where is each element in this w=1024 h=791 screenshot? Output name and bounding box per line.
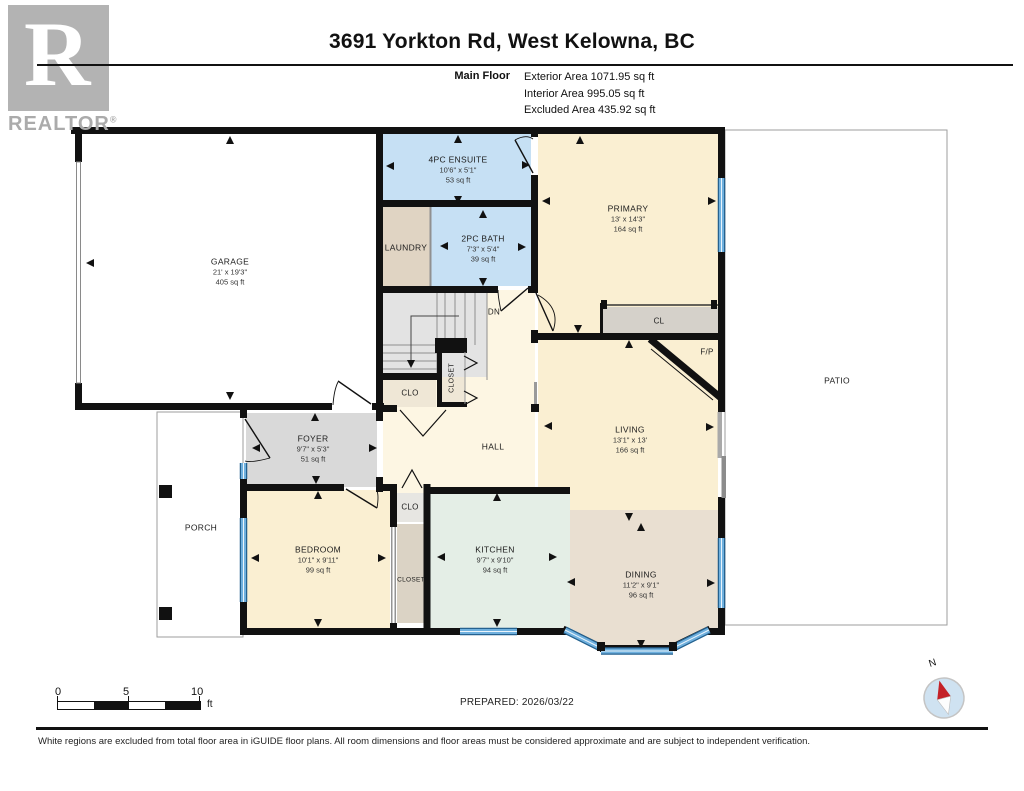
registered-mark: ® bbox=[110, 114, 118, 124]
room-name: FOYER bbox=[297, 434, 330, 445]
compass-icon bbox=[920, 674, 969, 723]
excluded-area: Excluded Area 435.92 sq ft bbox=[524, 103, 655, 120]
room-area: 166 sq ft bbox=[613, 446, 647, 456]
hall-closet-label: CLOSET bbox=[449, 363, 456, 393]
room-dims: 9'7" x 9'10" bbox=[475, 556, 514, 566]
room-area: 405 sq ft bbox=[211, 278, 249, 288]
room-dims: 21' x 19'3" bbox=[211, 268, 249, 278]
room-area: 164 sq ft bbox=[608, 225, 649, 235]
room-area: 51 sq ft bbox=[297, 455, 330, 465]
closet-label-cl: CL bbox=[654, 317, 665, 326]
room-area: 99 sq ft bbox=[295, 566, 341, 576]
realtor-logo-mark: R bbox=[8, 5, 109, 111]
page-title: 3691 Yorkton Rd, West Kelowna, BC bbox=[0, 30, 1024, 54]
scale-bar: 0 5 10 ft bbox=[55, 686, 275, 716]
room-name: PRIMARY bbox=[608, 204, 649, 215]
title-divider bbox=[37, 64, 1013, 66]
bedroom-closet-label: CLOSET bbox=[397, 577, 425, 584]
footer-divider bbox=[36, 727, 988, 730]
disclaimer-text: White regions are excluded from total fl… bbox=[38, 736, 1004, 747]
scale-unit: ft bbox=[207, 699, 213, 710]
room-label-ensuite: 4PC ENSUITE 10'6" x 5'1" 53 sq ft bbox=[428, 155, 487, 186]
room-label-primary: PRIMARY 13' x 14'3" 164 sq ft bbox=[608, 204, 649, 235]
room-area: 53 sq ft bbox=[428, 176, 487, 186]
scale-tick-0: 0 bbox=[55, 686, 61, 698]
room-area: 96 sq ft bbox=[623, 591, 659, 601]
realtor-logo-text: REALTOR® bbox=[8, 113, 117, 136]
room-label-kitchen: KITCHEN 9'7" x 9'10" 94 sq ft bbox=[475, 545, 514, 576]
garage-door bbox=[77, 162, 81, 383]
room-name: DINING bbox=[623, 570, 659, 581]
room-dims: 13' x 14'3" bbox=[608, 215, 649, 225]
realtor-logo: R REALTOR® bbox=[8, 5, 117, 136]
room-area: 94 sq ft bbox=[475, 566, 514, 576]
room-name: PORCH bbox=[185, 522, 217, 533]
room-label-foyer: FOYER 9'7" x 5'3" 51 sq ft bbox=[297, 434, 330, 465]
room-label-dining: DINING 11'2" x 9'1" 96 sq ft bbox=[623, 570, 659, 601]
bedroom-clo-label: CLO bbox=[401, 503, 418, 512]
room-label-porch: PORCH bbox=[185, 522, 217, 533]
hall-clo-label: CLO bbox=[401, 389, 418, 398]
room-dims: 10'1" x 9'11" bbox=[295, 556, 341, 566]
prepared-date: PREPARED: 2026/03/22 bbox=[460, 697, 574, 708]
room-name: BEDROOM bbox=[295, 545, 341, 556]
scale-tick-10: 10 bbox=[191, 686, 203, 698]
room-name: KITCHEN bbox=[475, 545, 514, 556]
room-name: 2PC BATH bbox=[461, 234, 504, 245]
floor-name: Main Floor bbox=[390, 70, 510, 82]
room-dims: 11'2" x 9'1" bbox=[623, 581, 659, 591]
room-dims: 10'6" x 5'1" bbox=[428, 166, 487, 176]
room-name: LIVING bbox=[613, 425, 647, 436]
fireplace-label: F/P bbox=[700, 348, 713, 357]
stairs-down-label: DN bbox=[488, 308, 500, 317]
room-label-bath: 2PC BATH 7'3" x 5'4" 39 sq ft bbox=[461, 234, 504, 265]
room-label-living: LIVING 13'1" x 13' 166 sq ft bbox=[613, 425, 647, 456]
room-area: 39 sq ft bbox=[461, 255, 504, 265]
room-name: HALL bbox=[482, 441, 504, 452]
interior-area: Interior Area 995.05 sq ft bbox=[524, 87, 655, 104]
floor-plan-page: R REALTOR® 3691 Yorkton Rd, West Kelowna… bbox=[0, 0, 1024, 791]
room-name: LAUNDRY bbox=[385, 242, 428, 253]
room-label-hall: HALL bbox=[482, 441, 504, 452]
room-dims: 13'1" x 13' bbox=[613, 436, 647, 446]
room-label-garage: GARAGE 21' x 19'3" 405 sq ft bbox=[211, 257, 249, 288]
room-label-laundry: LAUNDRY bbox=[385, 242, 428, 253]
room-name: PATIO bbox=[824, 375, 850, 386]
room-dims: 7'3" x 5'4" bbox=[461, 245, 504, 255]
room-dims: 9'7" x 5'3" bbox=[297, 445, 330, 455]
area-summary: Exterior Area 1071.95 sq ft Interior Are… bbox=[524, 70, 655, 120]
floor-plan-drawing bbox=[0, 0, 1024, 791]
exterior-area: Exterior Area 1071.95 sq ft bbox=[524, 70, 655, 87]
room-name: GARAGE bbox=[211, 257, 249, 268]
room-label-bedroom: BEDROOM 10'1" x 9'11" 99 sq ft bbox=[295, 545, 341, 576]
room-name: 4PC ENSUITE bbox=[428, 155, 487, 166]
bedroom-closet-slider bbox=[392, 527, 395, 623]
scale-bar-strip bbox=[57, 701, 201, 710]
room-label-patio: PATIO bbox=[824, 375, 850, 386]
